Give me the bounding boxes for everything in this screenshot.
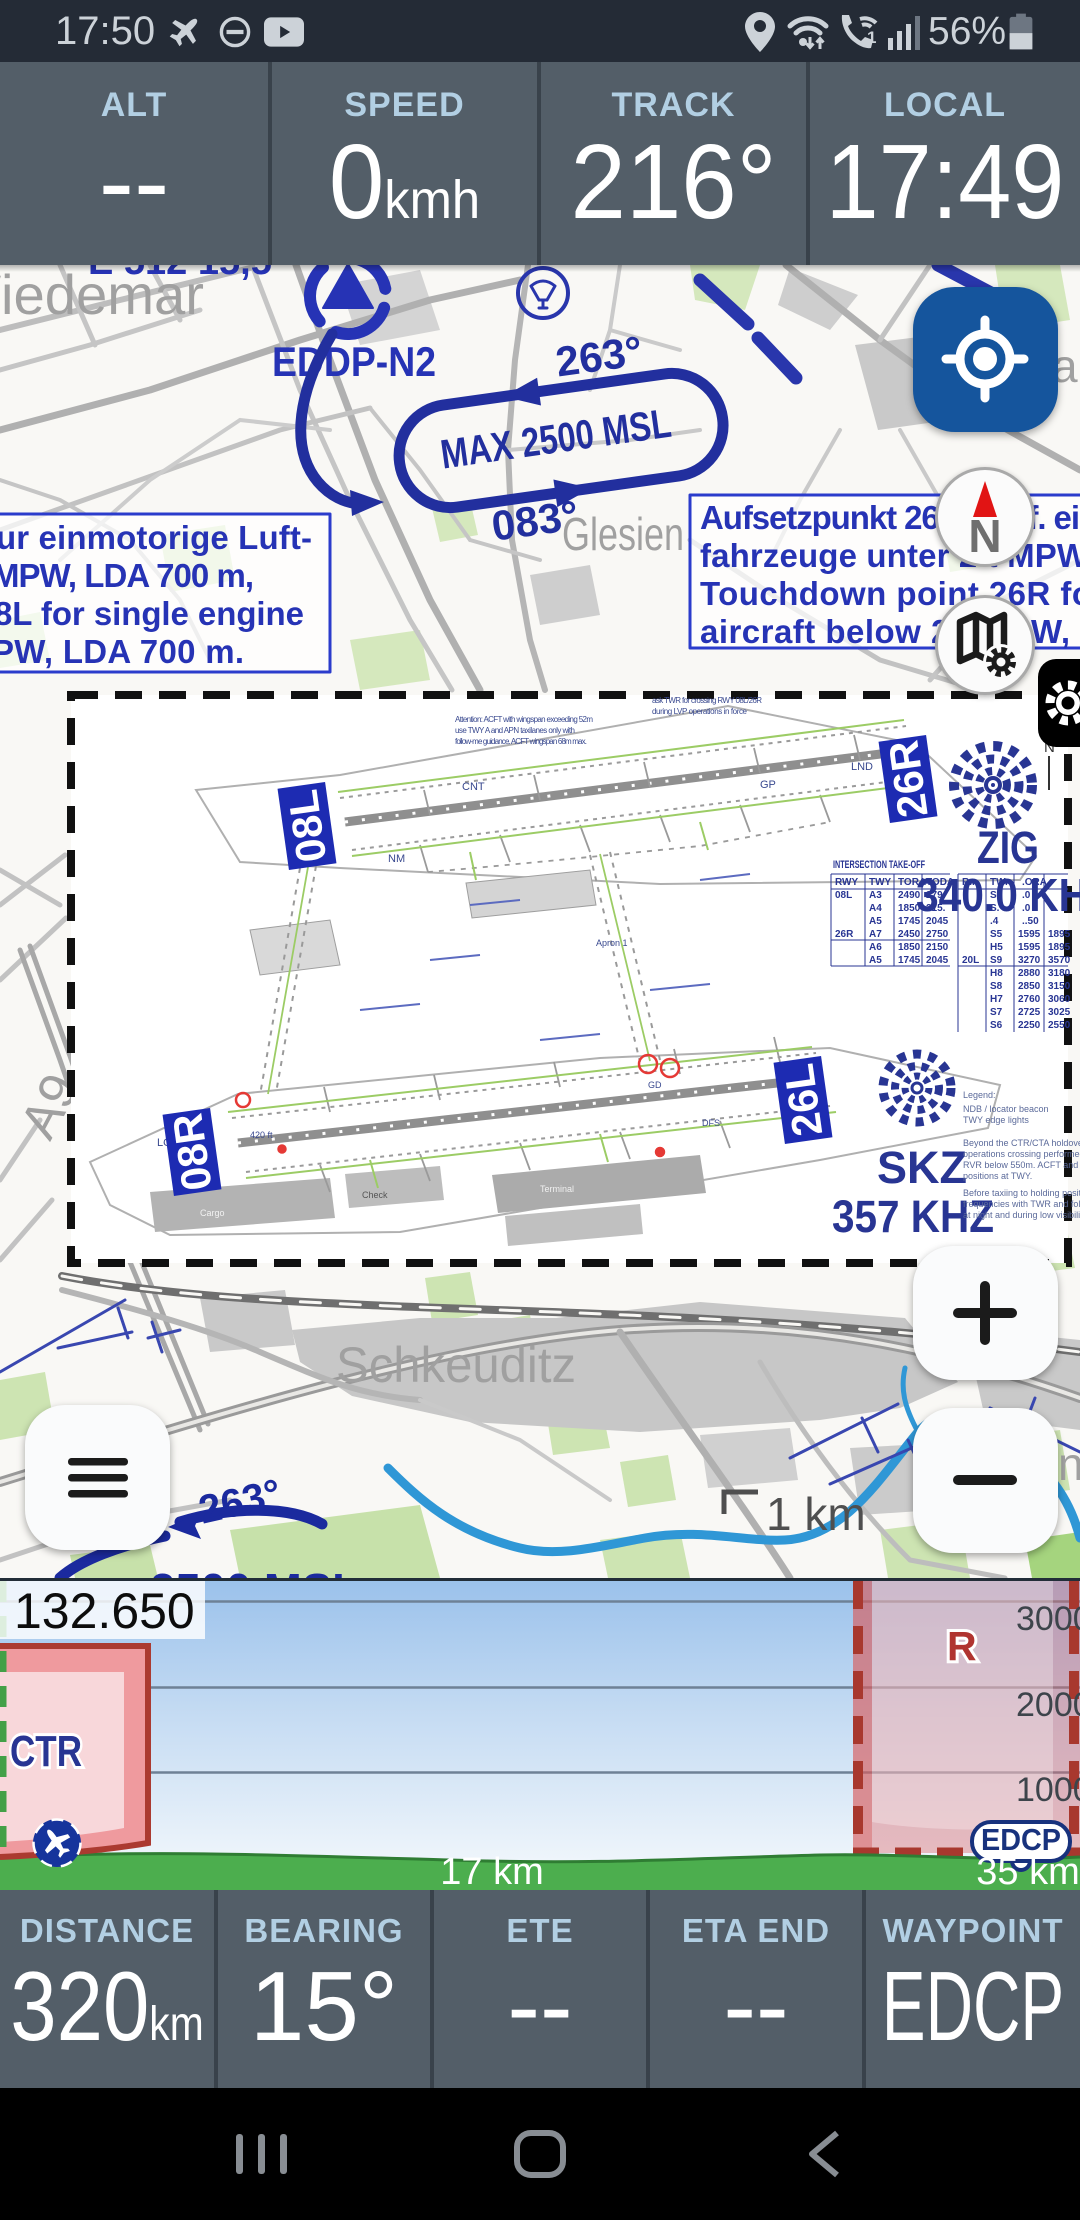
svg-text:H8: H8 (990, 968, 1003, 979)
svg-text:08L: 08L (279, 787, 336, 865)
svg-text:LND: LND (851, 761, 873, 773)
svg-text:1745: 1745 (898, 916, 921, 927)
svg-text:DFS: DFS (702, 1118, 720, 1128)
svg-text:2750: 2750 (926, 929, 949, 940)
svg-text:MPW, LDA 700 m,: MPW, LDA 700 m, (0, 557, 254, 594)
svg-text:Schkeuditz: Schkeuditz (336, 1337, 576, 1393)
svg-text:Before taxiing to holding posi: Before taxiing to holding position in ce… (963, 1188, 1080, 1198)
svg-text:2000: 2000 (1016, 1686, 1080, 1724)
svg-text:NDB / locator beacon: NDB / locator beacon (963, 1104, 1049, 1114)
svg-text:Check: Check (362, 1190, 388, 1200)
svg-text:..50: ..50 (1022, 916, 1039, 927)
svg-text:Beyond the CTR/CTA holdover ad: Beyond the CTR/CTA holdover advised CAT … (963, 1138, 1080, 1148)
svg-text:R: R (947, 1623, 977, 1669)
svg-text:279.: 279. (926, 890, 946, 901)
svg-text:EDDP-N2: EDDP-N2 (272, 338, 436, 385)
svg-text:H5: H5 (990, 942, 1003, 953)
svg-text:CTR: CTR (10, 1727, 82, 1776)
svg-text:1000: 1000 (1016, 1771, 1080, 1809)
svg-text:3000: 3000 (1016, 1600, 1080, 1638)
svg-text:A7: A7 (869, 929, 882, 940)
svg-text:.0: .0 (1022, 903, 1031, 914)
svg-text:GP: GP (760, 779, 776, 791)
svg-text:Terminal: Terminal (540, 1184, 574, 1194)
svg-text:RWY: RWY (835, 877, 858, 888)
svg-text:2250: 2250 (1018, 1020, 1041, 1031)
svg-text:A5: A5 (869, 916, 882, 927)
svg-text:.4: .4 (990, 916, 999, 927)
svg-text:S7: S7 (990, 1007, 1003, 1018)
svg-text:.0: .0 (1022, 890, 1031, 901)
svg-text:S6: S6 (990, 1020, 1003, 1031)
svg-text:PW, LDA 700 m.: PW, LDA 700 m. (0, 633, 244, 670)
svg-text:A5: A5 (869, 955, 882, 966)
svg-text:use TWY A and APN taxilanes on: use TWY A and APN taxilanes only with (455, 726, 575, 735)
svg-text:TWY: TWY (869, 877, 892, 888)
svg-text:1: 1 (867, 28, 876, 47)
svg-text:at night and during low visibi: at night and during low visibility, taxi… (963, 1210, 1080, 1220)
svg-text:3270: 3270 (1018, 955, 1041, 966)
svg-text:GD: GD (648, 1080, 662, 1090)
svg-text:2450: 2450 (898, 929, 921, 940)
svg-text:na: na (1058, 1438, 1080, 1490)
svg-text:S8: S8 (990, 981, 1003, 992)
svg-text:N: N (968, 510, 1001, 562)
svg-text:ur einmotorige Luft-: ur einmotorige Luft- (0, 519, 312, 556)
svg-text:H7: H7 (990, 994, 1003, 1005)
svg-text:08L: 08L (835, 890, 852, 901)
svg-text:132.650: 132.650 (14, 1583, 195, 1639)
svg-text:2490: 2490 (898, 890, 921, 901)
svg-text:2880: 2880 (1018, 968, 1041, 979)
svg-text:26R: 26R (835, 929, 854, 940)
svg-text:R..: R.. (962, 877, 975, 888)
svg-text:2500 MSL: 2500 MSL (150, 1564, 360, 1578)
svg-text:2550: 2550 (1048, 1020, 1071, 1031)
svg-text:during LVP operations in force: during LVP operations in force (652, 707, 748, 716)
svg-text:3025: 3025 (1048, 1007, 1071, 1018)
svg-text:Apron 1: Apron 1 (596, 938, 628, 948)
svg-text:S9: S9 (990, 955, 1003, 966)
svg-text:TWY edge lights: TWY edge lights (963, 1115, 1029, 1125)
svg-text:8L for single engine: 8L for single engine (0, 595, 304, 632)
svg-text:operations crossing performed: operations crossing performed restricted… (963, 1149, 1080, 1159)
svg-text:2725: 2725 (1018, 1007, 1041, 1018)
svg-text:.ORA: .ORA (1022, 877, 1047, 888)
svg-text:1595: 1595 (1018, 942, 1041, 953)
svg-text:RVR below 550m. ACFT and CAT I: RVR below 550m. ACFT and CAT II/III hold… (963, 1160, 1080, 1170)
svg-text:frequencies with TWR and follo: frequencies with TWR and follow-me assis… (963, 1199, 1080, 1209)
svg-text:2850: 2850 (1018, 981, 1041, 992)
svg-text:NM: NM (388, 853, 405, 865)
svg-text:A4: A4 (869, 903, 882, 914)
svg-text:S.: S. (990, 903, 1000, 914)
svg-text:420 ft: 420 ft (250, 1130, 273, 1140)
svg-text:2760: 2760 (1018, 994, 1041, 1005)
svg-text:215.: 215. (926, 903, 946, 914)
svg-text:3150: 3150 (1048, 981, 1071, 992)
svg-text:A3: A3 (869, 890, 882, 901)
svg-text:A6: A6 (869, 942, 882, 953)
svg-text:Cargo: Cargo (200, 1208, 225, 1218)
svg-text:S.: S. (990, 890, 1000, 901)
svg-text:follow-me guidance. ACFT wings: follow-me guidance. ACFT wingspan 68m ma… (455, 737, 587, 746)
svg-text:1850: 1850 (898, 942, 921, 953)
svg-text:Attention: ACFT with wingspan: Attention: ACFT with wingspan exceeding … (455, 715, 593, 724)
svg-text:26L: 26L (775, 1061, 832, 1139)
svg-text:S5: S5 (990, 929, 1003, 940)
svg-text:3180: 3180 (1048, 968, 1071, 979)
svg-text:1 km: 1 km (766, 1488, 866, 1540)
svg-text:3570: 3570 (1048, 955, 1071, 966)
svg-text:1895: 1895 (1048, 929, 1071, 940)
svg-text:35 km: 35 km (976, 1851, 1079, 1890)
svg-text:SKZ: SKZ (877, 1142, 967, 1193)
svg-text:TODA: TODA (926, 877, 954, 888)
svg-text:positions at TWY.: positions at TWY. (963, 1171, 1032, 1181)
svg-text:1745: 1745 (898, 955, 921, 966)
svg-text:17 km: 17 km (440, 1851, 543, 1890)
svg-text:3060: 3060 (1048, 994, 1071, 1005)
svg-text:1595: 1595 (1018, 929, 1041, 940)
svg-text:CNT: CNT (462, 781, 485, 793)
svg-text:ask TWR for crossing RWY 08L/2: ask TWR for crossing RWY 08L/26R (652, 696, 762, 705)
svg-text:ZIG: ZIG (977, 822, 1039, 873)
svg-text:2150: 2150 (926, 942, 949, 953)
svg-text:INTERSECTION TAKE-OFF: INTERSECTION TAKE-OFF (833, 859, 925, 871)
svg-text:2045: 2045 (926, 955, 949, 966)
svg-text:1895: 1895 (1048, 942, 1071, 953)
svg-text:TW.: TW. (990, 877, 1008, 888)
svg-text:Legend:: Legend: (963, 1090, 996, 1100)
svg-text:2045: 2045 (926, 916, 949, 927)
svg-text:1850: 1850 (898, 903, 921, 914)
svg-text:20L: 20L (962, 955, 979, 966)
